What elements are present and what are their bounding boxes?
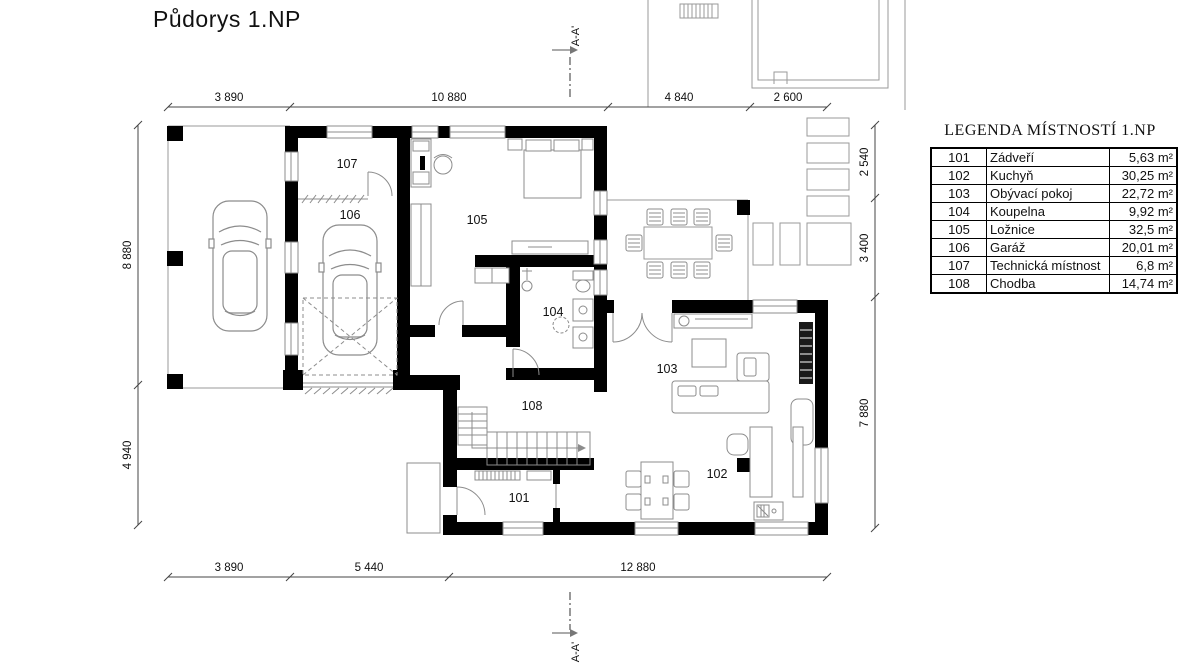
legend-room-name: Chodba [987, 275, 1110, 294]
room-label-105: 105 [467, 213, 488, 227]
floor-plan-page: Půdorys 1.NP [0, 0, 1180, 664]
room-label-103: 103 [657, 362, 678, 376]
dim-top-2: 10 880 [431, 92, 466, 104]
outdoor-table [644, 227, 712, 259]
garage-details [298, 195, 397, 394]
legend-room-area: 6,8 m² [1110, 257, 1178, 275]
apron-hatch [305, 388, 393, 394]
legend-room-area: 30,25 m² [1110, 167, 1178, 185]
shower-drain [522, 281, 532, 291]
nightstand [582, 139, 593, 150]
legend-title: LEGENDA MÍSTNOSTÍ 1.NP [930, 122, 1170, 140]
section-label-top: A-A' [570, 26, 582, 46]
pool-inner [758, 0, 879, 80]
room-label-106: 106 [340, 208, 361, 222]
dim-top-3: 4 840 [665, 92, 694, 104]
legend-row: 103 Obývací pokoj 22,72 m² [931, 185, 1177, 203]
section-marker-bottom: A-A' [552, 592, 582, 662]
carport [167, 126, 290, 389]
dim-bottom-3: 12 880 [620, 562, 655, 574]
sink-unit [754, 502, 783, 520]
dim-right-1: 2 540 [859, 148, 871, 177]
legend-row: 108 Chodba 14,74 m² [931, 275, 1177, 294]
legend-row: 102 Kuchyň 30,25 m² [931, 167, 1177, 185]
legend-table: 101 Zádveří 5,63 m² 102 Kuchyň 30,25 m² … [930, 147, 1178, 294]
radiator [475, 471, 520, 480]
partition-hatch [298, 195, 368, 203]
legend-room-number: 107 [931, 257, 987, 275]
dim-top-1: 3 890 [215, 92, 244, 104]
legend-room-name: Kuchyň [987, 167, 1110, 185]
legend-room-name: Ložnice [987, 221, 1110, 239]
room-label-102: 102 [707, 467, 728, 481]
floor-plan-drawing: 101 102 103 104 105 106 107 108 [0, 0, 1180, 664]
side-counter [793, 427, 803, 497]
dim-bottom-2: 5 440 [355, 562, 384, 574]
legend-room-number: 106 [931, 239, 987, 257]
pool-bench [680, 4, 718, 18]
dim-right-2: 3 400 [859, 234, 871, 263]
legend: LEGENDA MÍSTNOSTÍ 1.NP 101 Zádveří 5,63 … [930, 122, 1170, 294]
legend-room-number: 101 [931, 148, 987, 167]
legend-room-area: 14,74 m² [1110, 275, 1178, 294]
dim-right-3: 7 880 [859, 399, 871, 428]
dining-chair [626, 494, 641, 510]
legend-room-area: 32,5 m² [1110, 221, 1178, 239]
coffee-table [692, 339, 726, 367]
legend-room-number: 104 [931, 203, 987, 221]
pool-terrace [648, 0, 905, 265]
legend-row: 101 Zádveří 5,63 m² [931, 148, 1177, 167]
entry-porch [407, 463, 440, 533]
toilet [573, 271, 593, 292]
bar-stool [727, 434, 748, 455]
car-top-view-carport [209, 201, 271, 331]
staircase [458, 407, 590, 465]
dining-terrace [607, 200, 748, 300]
legend-room-number: 103 [931, 185, 987, 203]
legend-room-number: 105 [931, 221, 987, 239]
dim-top-4: 2 600 [774, 92, 803, 104]
dim-left-1: 8 880 [122, 241, 134, 270]
dim-left-2: 4 940 [122, 441, 134, 470]
legend-room-name: Technická místnost [987, 257, 1110, 275]
pergola-post [737, 200, 750, 215]
sink [573, 327, 593, 348]
nightstand [508, 139, 522, 150]
section-label-bottom: A-A' [570, 642, 582, 662]
dining-chair [674, 494, 689, 510]
room-label-101: 101 [509, 491, 530, 505]
dim-bottom-1: 3 890 [215, 562, 244, 574]
legend-room-area: 20,01 m² [1110, 239, 1178, 257]
legend-room-name: Obývací pokoj [987, 185, 1110, 203]
dining-table [641, 462, 673, 519]
room-label-107: 107 [337, 157, 358, 171]
room-label-104: 104 [543, 305, 564, 319]
car-top-view-garage [319, 225, 381, 355]
room-label-108: 108 [522, 399, 543, 413]
pillow [526, 140, 551, 151]
legend-room-area: 5,63 m² [1110, 148, 1178, 167]
dining-chair [626, 471, 641, 487]
sink [573, 299, 593, 321]
living-room-furniture [672, 322, 813, 445]
pillow [554, 140, 579, 151]
kitchen-column [737, 458, 750, 472]
kitchen-island [750, 427, 772, 497]
desk-chair [434, 156, 452, 174]
stool [553, 317, 569, 333]
legend-room-area: 9,92 m² [1110, 203, 1178, 221]
legend-room-area: 22,72 m² [1110, 185, 1178, 203]
legend-row: 105 Ložnice 32,5 m² [931, 221, 1177, 239]
tv-unit [799, 322, 813, 384]
pool-outline [752, 0, 888, 88]
legend-row: 106 Garáž 20,01 m² [931, 239, 1177, 257]
kitchen-counter [674, 314, 752, 328]
legend-room-name: Garáž [987, 239, 1110, 257]
legend-row: 107 Technická místnost 6,8 m² [931, 257, 1177, 275]
section-marker-top: A-A' [552, 26, 582, 97]
legend-room-name: Zádveří [987, 148, 1110, 167]
legend-room-number: 108 [931, 275, 987, 294]
pool-ladder-icon [774, 72, 787, 84]
legend-room-number: 102 [931, 167, 987, 185]
legend-row: 104 Koupelna 9,92 m² [931, 203, 1177, 221]
dining-chair [674, 471, 689, 487]
legend-room-name: Koupelna [987, 203, 1110, 221]
shoe-cabinet [527, 471, 551, 480]
bed [524, 150, 581, 198]
